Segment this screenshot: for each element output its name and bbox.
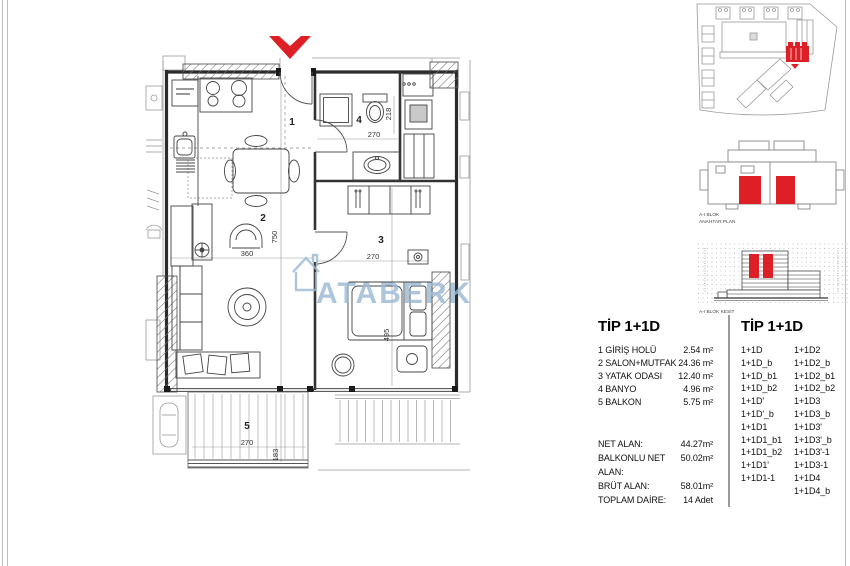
room-name: 1 GİRİŞ HOLÜ <box>598 344 656 357</box>
spec-room-row: 3 YATAK ODASI 12.40 m² <box>598 370 713 383</box>
variant-code: 1+1D3_b <box>794 408 850 421</box>
dim-balcony-h: 183 <box>271 449 280 462</box>
ac-unit-icon <box>153 396 186 454</box>
stove-icon <box>200 78 252 112</box>
site-plan <box>697 4 837 115</box>
shelf <box>403 74 433 96</box>
stool-icon <box>332 354 354 376</box>
watermark-text: ATABERK <box>316 277 472 310</box>
variant-code: 1+1D3 <box>794 395 850 408</box>
entrance-arrow-icon <box>269 36 311 59</box>
dim-bath-w: 270 <box>368 130 381 139</box>
bench-icon <box>397 346 427 372</box>
variant-code: 1+1D2_b2 <box>794 382 850 395</box>
summary-value: 50.02m² <box>681 451 713 479</box>
armchair-icon <box>230 224 262 248</box>
variant-code: 1+1D_b2 <box>741 382 794 395</box>
variant-code: 1+1D3'_b <box>794 434 850 447</box>
bathroom <box>320 94 400 180</box>
neighbor-balcony <box>318 395 470 470</box>
balcony-rail <box>188 460 308 467</box>
key-plan-label-2: ANAHTAR PLAN <box>699 219 736 225</box>
room-number-bath: 4 <box>356 115 362 126</box>
variant-code: 1+1D2 <box>794 344 850 357</box>
variant-code: 1+1D1_b2 <box>741 446 794 459</box>
spec-summary-row: TOPLAM DAİRE: 14 Adet <box>598 493 713 507</box>
variant-code: 1+1D3-1 <box>794 459 850 472</box>
room-number-salon: 2 <box>260 213 266 224</box>
kitchen-sink-icon <box>174 132 195 172</box>
dining-table-icon <box>225 136 300 207</box>
summary-name: TOPLAM DAİRE: <box>598 493 666 507</box>
room-area: 4.96 m² <box>683 383 713 396</box>
variant-column-1: 1+1D 1+1D_b 1+1D_b1 1+1D_b2 1+1D' 1+1D'_… <box>741 344 794 498</box>
spec-summary-row: NET ALAN: 44.27m² <box>598 437 713 451</box>
variant-code: 1+1D <box>741 344 794 357</box>
site-blocks-top <box>716 7 802 19</box>
spec-title: TİP 1+1D <box>598 318 713 335</box>
room-number-balcony: 5 <box>244 421 250 432</box>
balcony <box>153 392 308 468</box>
spec-room-row: 1 GİRİŞ HOLÜ 2.54 m² <box>598 344 713 357</box>
room-name: 4 BANYO <box>598 383 636 396</box>
dimension-lines <box>170 80 428 462</box>
floor-plan-page: 1 2 3 4 5 750 360 270 495 270 218 270 18… <box>0 0 850 566</box>
dim-bath-h: 218 <box>384 108 393 121</box>
summary-name: BALKONLU NET ALAN: <box>598 451 681 479</box>
variant-code: 1+1D4 <box>794 472 850 485</box>
variants-title: TİP 1+1D <box>741 318 850 335</box>
key-plan-highlighted-units <box>739 176 795 204</box>
spec-block: TİP 1+1D 1 GİRİŞ HOLÜ 2.54 m² 2 SALON+MU… <box>598 318 713 507</box>
variant-columns: 1+1D 1+1D_b 1+1D_b1 1+1D_b2 1+1D' 1+1D'_… <box>741 344 850 498</box>
dim-bedroom-h: 495 <box>382 329 391 342</box>
spec-room-row: 5 BALKON 5.75 m² <box>598 396 713 409</box>
spec-summary: NET ALAN: 44.27m² BALKONLU NET ALAN: 50.… <box>598 437 713 507</box>
washing-machine-icon <box>405 100 432 129</box>
variant-code: 1+1D1_b1 <box>741 434 794 447</box>
spec-room-row: 2 SALON+MUTFAK 24.36 m² <box>598 357 713 370</box>
coffee-table-icon <box>228 288 266 326</box>
summary-value: 58.01m² <box>681 479 713 493</box>
room-number-bedroom: 3 <box>378 235 384 246</box>
cabinet-icon <box>404 134 434 178</box>
room-number-hall: 1 <box>289 117 295 128</box>
laundry-niche <box>403 74 434 178</box>
wardrobe-icon <box>348 186 430 214</box>
spec-room-list: 1 GİRİŞ HOLÜ 2.54 m² 2 SALON+MUTFAK 24.3… <box>598 344 713 409</box>
floor-plan: 1 2 3 4 5 750 360 270 495 270 218 270 18… <box>146 36 472 470</box>
variant-code: 1+1D_b <box>741 357 794 370</box>
site-highlighted-unit <box>786 42 809 69</box>
variant-code: 1+1D_b1 <box>741 370 794 383</box>
column-divider <box>728 315 730 507</box>
spec-room-row: 4 BANYO 4.96 m² <box>598 383 713 396</box>
spec-summary-row: BRÜT ALAN: 58.01m² <box>598 479 713 493</box>
variant-code: 1+1D1' <box>741 459 794 472</box>
appliance-label <box>176 88 194 90</box>
sofa-icon <box>172 266 260 378</box>
drawing-svg: 1 2 3 4 5 750 360 270 495 270 218 270 18… <box>0 0 850 566</box>
doors <box>280 72 347 264</box>
summary-value: 14 Adet <box>683 493 713 507</box>
key-plan-label-1: A-I BLOK <box>699 212 720 218</box>
room-name: 3 YATAK ODASI <box>598 370 662 383</box>
site-boundary <box>697 4 837 115</box>
dim-salon-w: 360 <box>241 249 254 258</box>
living-area <box>172 224 266 378</box>
dim-balcony-w: 270 <box>241 438 254 447</box>
ceiling-light-icon <box>195 243 209 257</box>
room-area: 12.40 m² <box>678 370 713 383</box>
section-label: A-I BLOK KESİT <box>699 308 735 315</box>
dim-bedroom-w: 270 <box>367 252 380 261</box>
washbasin-icon <box>353 152 400 180</box>
key-plan: A-I BLOK ANAHTAR PLAN <box>699 141 844 225</box>
variant-code: 1+1D' <box>741 395 794 408</box>
site-blocks-left <box>702 26 714 108</box>
spec-summary-row: BALKONLU NET ALAN: 50.02m² <box>598 451 713 479</box>
variant-code: 1+1D4_b <box>794 485 850 498</box>
fridge-icon <box>171 206 193 266</box>
variants-block: TİP 1+1D 1+1D 1+1D_b 1+1D_b1 1+1D_b2 1+1… <box>741 318 850 498</box>
summary-value: 44.27m² <box>681 437 713 451</box>
variant-code: 1+1D3'-1 <box>794 446 850 459</box>
variant-code: 1+1D'_b <box>741 408 794 421</box>
variant-column-2: 1+1D2 1+1D2_b 1+1D2_b1 1+1D2_b2 1+1D3 1+… <box>794 344 850 498</box>
site-blocks-diagonal <box>737 59 793 108</box>
room-name: 2 SALON+MUTFAK <box>598 357 676 370</box>
variant-code: 1+1D3' <box>794 421 850 434</box>
nightstand-icon <box>408 250 428 264</box>
summary-name: BRÜT ALAN: <box>598 479 649 493</box>
summary-name: NET ALAN: <box>598 437 643 451</box>
room-name: 5 BALKON <box>598 396 641 409</box>
room-area: 2.54 m² <box>683 344 713 357</box>
room-area: 24.36 m² <box>678 357 713 370</box>
variant-code: 1+1D1 <box>741 421 794 434</box>
section-view: A-I BLOK KESİT <box>698 242 848 315</box>
dashed-lines <box>170 76 313 198</box>
variant-code: 1+1D1-1 <box>741 472 794 485</box>
room-area: 5.75 m² <box>683 396 713 409</box>
variant-code: 1+1D2_b1 <box>794 370 850 383</box>
kitchen <box>171 76 252 266</box>
dim-salon-h: 750 <box>270 231 279 244</box>
key-plan-outline <box>700 141 844 209</box>
variant-code: 1+1D2_b <box>794 357 850 370</box>
